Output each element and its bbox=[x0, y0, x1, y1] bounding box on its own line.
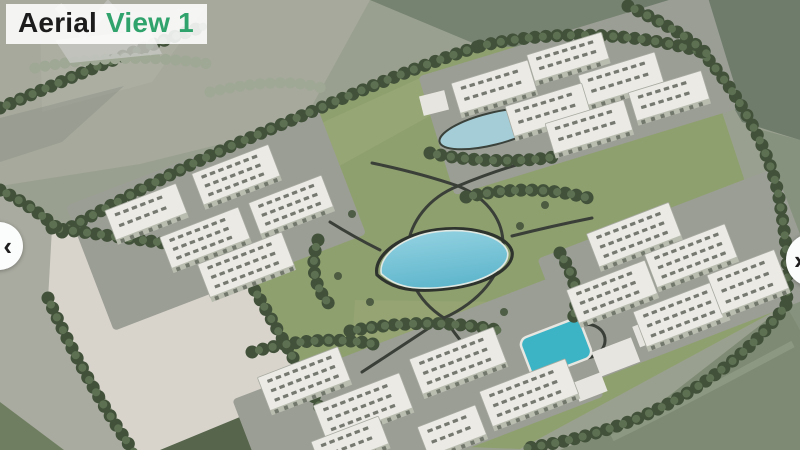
view-title: Aerial View 1 bbox=[6, 4, 207, 44]
view-title-prefix: Aerial bbox=[18, 9, 97, 37]
aerial-render-image bbox=[0, 0, 800, 450]
aerial-view-slide: Aerial View 1 ‹ › bbox=[0, 0, 800, 450]
chevron-right-icon: › bbox=[794, 245, 800, 276]
view-title-highlight: View 1 bbox=[106, 9, 194, 37]
chevron-left-icon: ‹ bbox=[3, 231, 12, 262]
